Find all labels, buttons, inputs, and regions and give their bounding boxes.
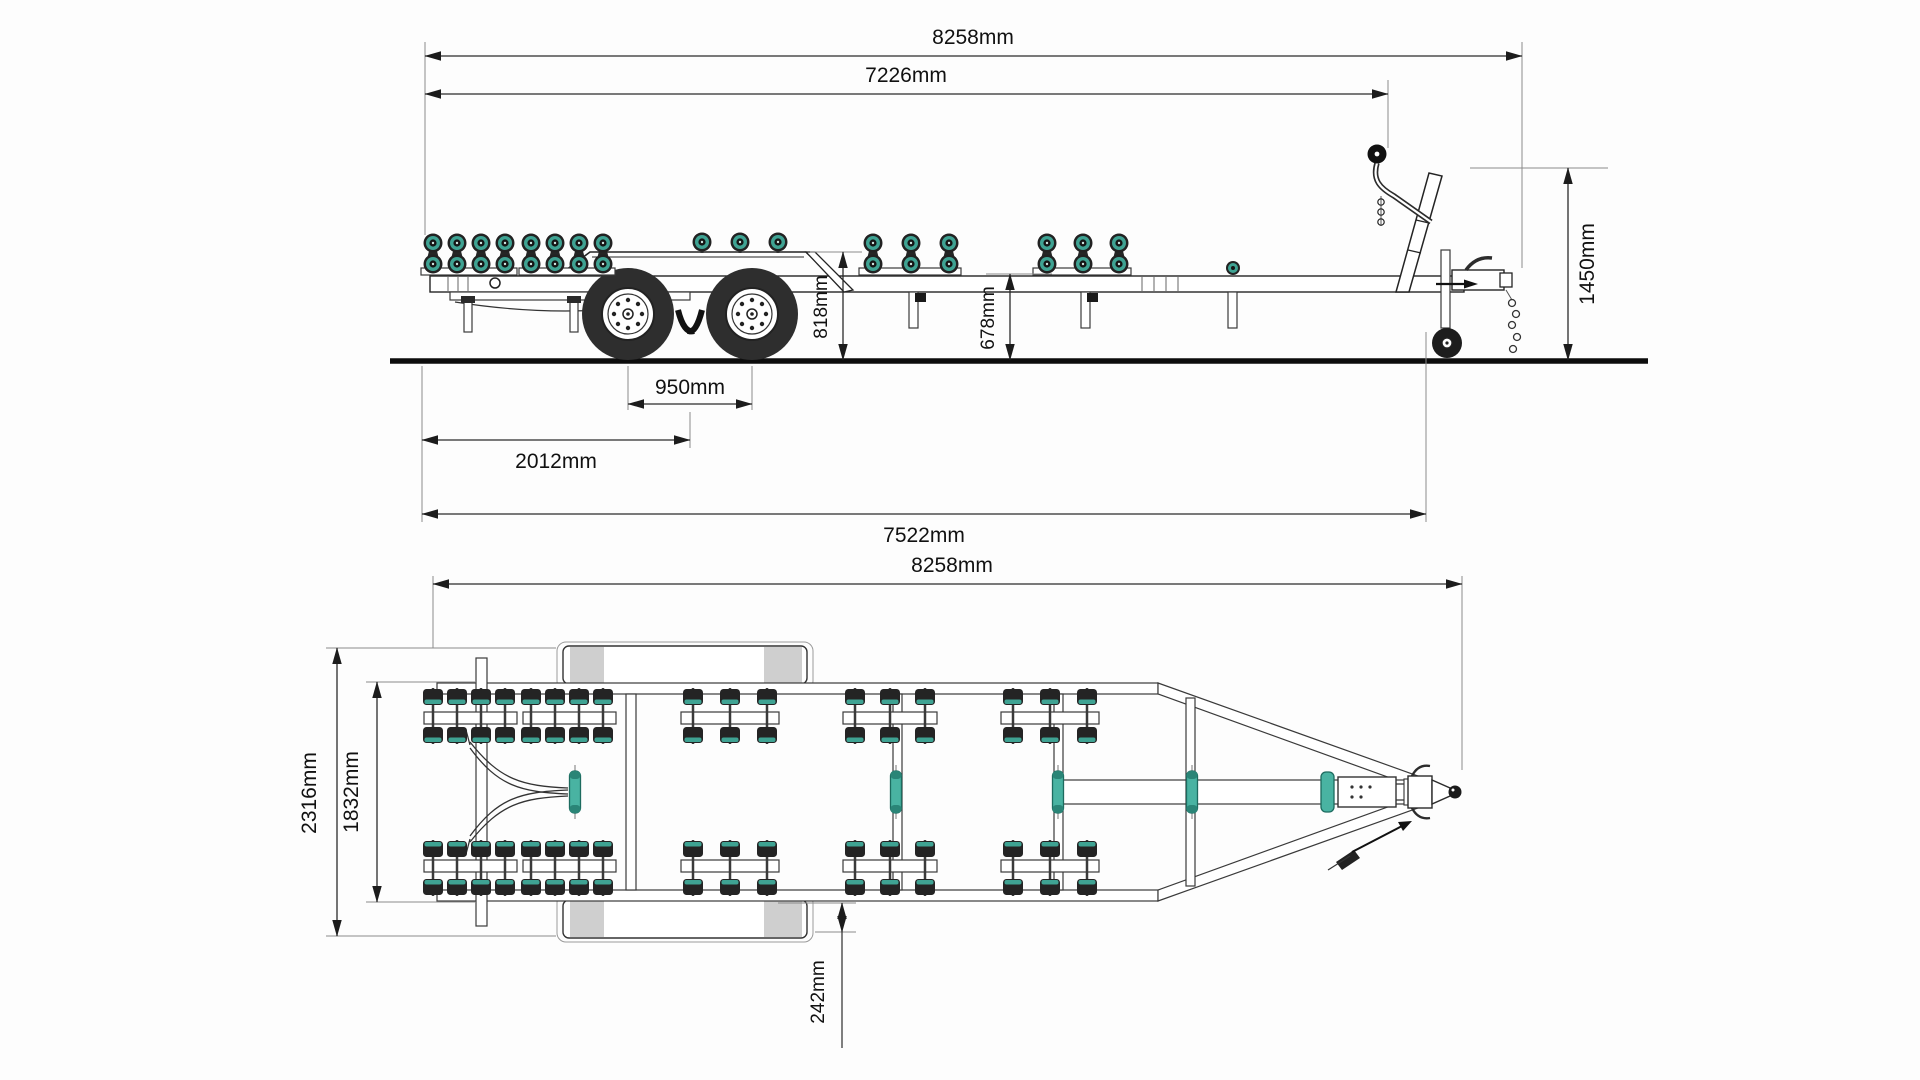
roller-row-arch — [693, 233, 788, 254]
plan-roller-banks-bottom — [423, 840, 1099, 896]
dim-label-axle-spacing: 950mm — [655, 376, 725, 399]
dim-axle-spacing: 950mm — [628, 366, 752, 410]
main-beam — [430, 276, 1464, 292]
roller-bank-rear-1 — [421, 234, 517, 276]
keel-support-posts — [909, 292, 1237, 328]
winch-stand — [1396, 173, 1442, 292]
roller-bank-mid-1 — [859, 234, 961, 276]
roller-bank-mid-2 — [1033, 234, 1131, 276]
dim-label-overall-height: 1450mm — [1576, 223, 1599, 305]
wheel-front — [706, 268, 798, 360]
bow-stop-mast — [1368, 145, 1432, 227]
dim-label-bed-width: 1832mm — [340, 751, 363, 833]
dim-label-fender-offset: 242mm — [808, 960, 829, 1023]
dim-body-length-side: 7226mm — [425, 64, 1388, 148]
coupler-plan — [1408, 766, 1462, 819]
dim-label-chassis-length: 7522mm — [883, 524, 965, 547]
top-view: 8258mm 2316mm 1832mm 242mm — [298, 554, 1462, 1048]
bow-support-roller — [1226, 261, 1240, 275]
drawing-canvas: 8258mm 7226mm 1450mm 818mm 678mm 950mm — [0, 0, 1920, 1080]
dim-label-overall-length-plan: 8258mm — [911, 554, 993, 577]
dim-overall-length-side: 8258mm — [425, 26, 1522, 268]
winch-strap-spool — [1321, 772, 1334, 812]
dim-rear-frame-height: 818mm — [810, 252, 862, 360]
drawbar-arm-top — [1158, 683, 1418, 788]
safety-chain — [1506, 290, 1521, 353]
jockey-wheel — [1432, 250, 1462, 358]
trailer-technical-drawing: 8258mm 7226mm 1450mm 818mm 678mm 950mm — [0, 0, 1920, 1080]
dim-label-overall-length-side: 8258mm — [932, 26, 1014, 49]
dim-label-rear-frame-height: 818mm — [811, 275, 832, 338]
dim-label-overall-width: 2316mm — [298, 752, 321, 834]
dim-rear-overhang: 2012mm — [422, 366, 690, 522]
roller-bank-rear-2 — [519, 234, 615, 276]
dim-overall-height: 1450mm — [1470, 168, 1608, 360]
plan-roller-banks-top — [423, 688, 1099, 744]
dim-label-body-length-side: 7226mm — [865, 64, 947, 87]
wheel-rear — [582, 268, 674, 360]
side-view: 8258mm 7226mm 1450mm 818mm 678mm 950mm — [390, 26, 1648, 547]
dim-label-rear-overhang: 2012mm — [515, 450, 597, 473]
axle-rocker — [678, 310, 702, 331]
dim-label-main-frame-height: 678mm — [978, 286, 999, 349]
drawbar-arm-bottom — [1158, 796, 1418, 901]
